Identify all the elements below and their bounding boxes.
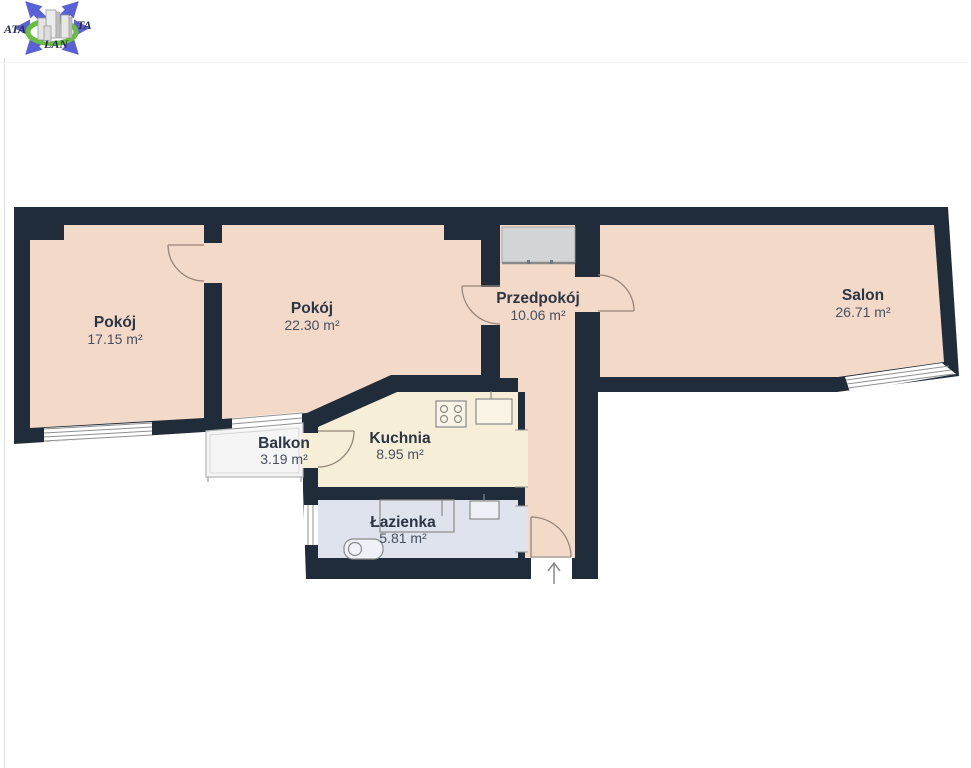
room-floor-salon [600,225,944,377]
room-area: 3.19 m² [260,451,308,467]
room-label-lazienka: Łazienka 5.81 m² [370,514,436,546]
room-label-pokoj-2: Pokój 22.30 m² [284,300,340,333]
room-label-balkon: Balkon 3.19 m² [258,435,310,467]
room-name: Przedpokój [496,290,580,307]
room-name: Pokój [291,300,333,317]
floorplan-page: ATA TA LAN [0,0,971,768]
room-name: Pokój [94,314,136,331]
room-area: 8.95 m² [376,446,424,462]
room-name: Łazienka [370,514,436,531]
room-area: 10.06 m² [510,307,566,323]
logo-text-left: ATA [3,22,26,36]
room-area: 22.30 m² [284,317,340,333]
room-label-salon: Salon 26.71 m² [835,287,891,320]
room-label-kuchnia: Kuchnia 8.95 m² [369,430,431,462]
room-area: 5.81 m² [379,530,427,546]
logo-text-right: TA [77,18,92,32]
window-lazienka [304,505,318,545]
room-area: 17.15 m² [87,331,143,347]
room-name: Kuchnia [369,430,431,447]
door-lazienka-przedpokoj [515,506,528,552]
room-name: Salon [842,287,884,304]
room-area: 26.71 m² [835,304,891,320]
floorplan-image: ATA TA LAN [0,0,971,768]
room-name: Balkon [258,435,310,452]
room-label-pokoj-1: Pokój 17.15 m² [87,314,143,347]
toilet-icon [344,539,383,559]
opening-kuchnia-przedpokoj [515,430,528,487]
logo-text-bottom: LAN [43,37,69,51]
wardrobe [502,227,575,264]
stove-icon [436,401,466,427]
